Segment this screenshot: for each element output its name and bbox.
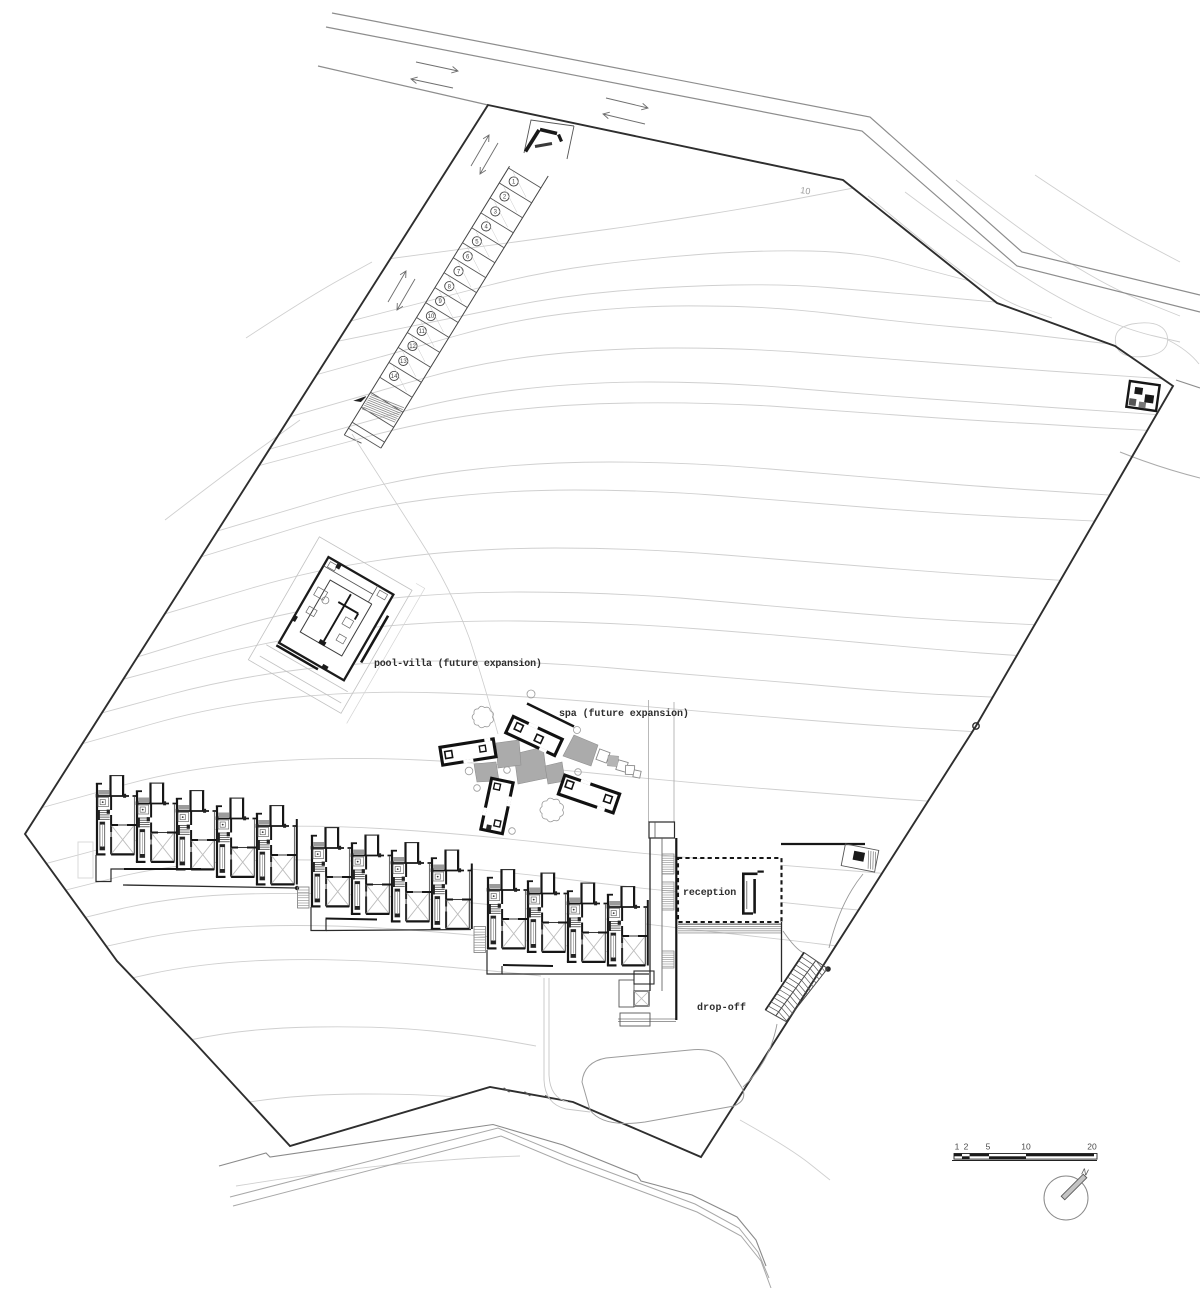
svg-text:2: 2 bbox=[964, 1142, 969, 1152]
svg-text:10: 10 bbox=[1021, 1142, 1031, 1152]
svg-text:14: 14 bbox=[391, 374, 398, 380]
svg-text:1: 1 bbox=[955, 1142, 960, 1152]
svg-text:reception: reception bbox=[683, 887, 736, 899]
svg-text:pool-villa (future expansion): pool-villa (future expansion) bbox=[374, 658, 542, 670]
svg-text:12: 12 bbox=[409, 344, 416, 350]
svg-text:drop-off: drop-off bbox=[697, 1002, 746, 1014]
svg-text:5: 5 bbox=[986, 1142, 991, 1152]
svg-text:10: 10 bbox=[800, 185, 811, 196]
svg-text:20: 20 bbox=[1087, 1142, 1097, 1152]
svg-text:spa (future expansion): spa (future expansion) bbox=[559, 708, 689, 720]
svg-text:11: 11 bbox=[419, 329, 426, 335]
svg-text:13: 13 bbox=[400, 359, 407, 365]
svg-text:10: 10 bbox=[428, 314, 435, 320]
